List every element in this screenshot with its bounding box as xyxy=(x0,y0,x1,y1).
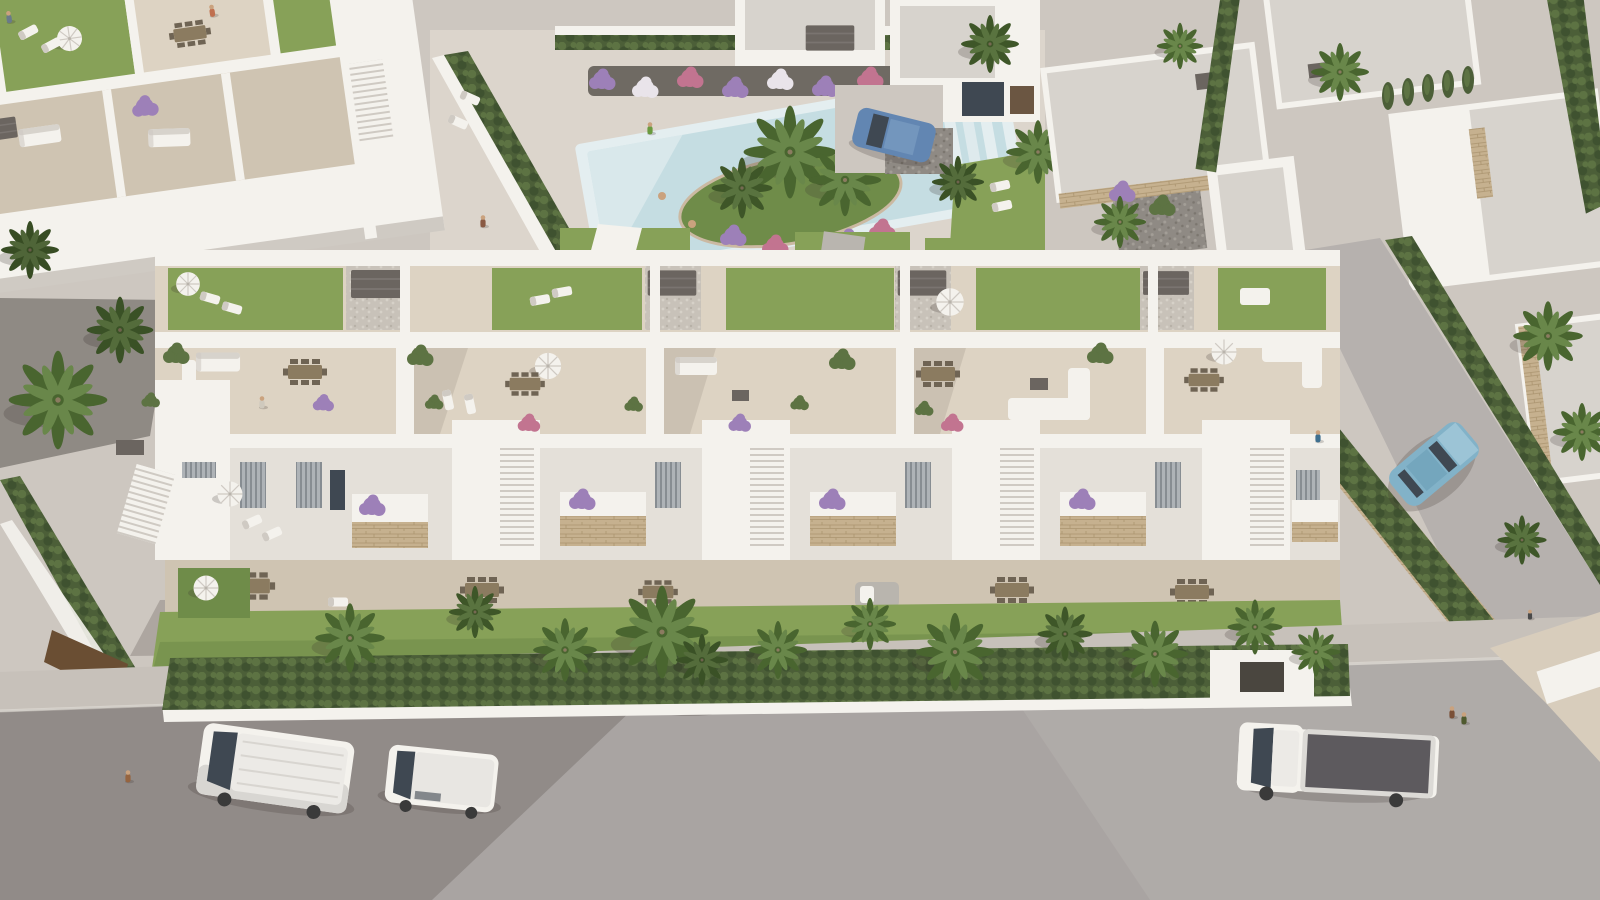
cab-roof xyxy=(1271,730,1300,787)
cypress xyxy=(1382,82,1394,110)
entry-door xyxy=(1010,86,1034,114)
outdoor-sofa xyxy=(196,353,240,372)
aerial-render: aerial-3d-render-of-white-mediterranean-… xyxy=(0,0,1600,900)
party-wall xyxy=(896,340,914,446)
stone-balcony-front xyxy=(810,516,896,546)
truck-bed xyxy=(1303,731,1434,796)
louver-window xyxy=(182,462,216,478)
outdoor-sofa xyxy=(148,128,191,147)
render-canvas: aerial-3d-render-of-white-mediterranean-… xyxy=(0,0,1600,900)
roof-daybed xyxy=(1240,288,1270,305)
parapet-wall xyxy=(1148,260,1158,336)
louver-window xyxy=(655,462,681,508)
stone-balcony-front xyxy=(560,516,646,546)
cypress xyxy=(1442,70,1454,98)
staircase xyxy=(750,446,784,550)
louver-window xyxy=(1155,462,1181,508)
gate-opening xyxy=(1240,662,1284,692)
coffee-table xyxy=(1030,378,1048,390)
roof-lawn xyxy=(976,268,1144,330)
staircase xyxy=(500,446,534,550)
stone-balcony-front xyxy=(1060,516,1146,546)
corner-sofa xyxy=(1302,342,1322,388)
white-pickup-truck xyxy=(1236,722,1440,809)
bbq-bench xyxy=(116,440,144,455)
cypress xyxy=(1402,78,1414,106)
staircase xyxy=(1000,446,1034,550)
main-block xyxy=(116,224,1340,656)
parapet-wall xyxy=(400,260,410,336)
roof-lawn xyxy=(492,268,642,330)
swimmer xyxy=(658,192,666,200)
parapet-wall xyxy=(650,260,660,336)
windshield xyxy=(1251,727,1274,788)
pergola xyxy=(806,25,855,50)
stone-balcony-front xyxy=(352,522,428,548)
louver-window xyxy=(240,462,266,508)
roof-lawn xyxy=(726,268,894,330)
balcony-rail xyxy=(352,494,428,504)
corner-sofa xyxy=(1068,368,1090,420)
party-wall xyxy=(646,340,664,446)
door-opening xyxy=(330,470,345,510)
parapet-wall xyxy=(900,260,910,336)
porch-opening xyxy=(962,82,1004,116)
sun-lounger xyxy=(328,598,348,607)
party-wall xyxy=(1146,340,1164,446)
swimmer xyxy=(688,220,696,228)
louver-window xyxy=(905,462,931,508)
cypress xyxy=(1462,66,1474,94)
outdoor-sofa xyxy=(675,357,717,375)
roof-lawn xyxy=(1218,268,1326,330)
louver-window xyxy=(296,462,322,508)
coffee-table xyxy=(732,390,749,401)
stone-balcony-front xyxy=(1292,522,1338,542)
parapet-wall xyxy=(155,250,1340,266)
staircase xyxy=(1250,446,1284,550)
cypress xyxy=(1422,74,1434,102)
pergola xyxy=(351,270,405,298)
